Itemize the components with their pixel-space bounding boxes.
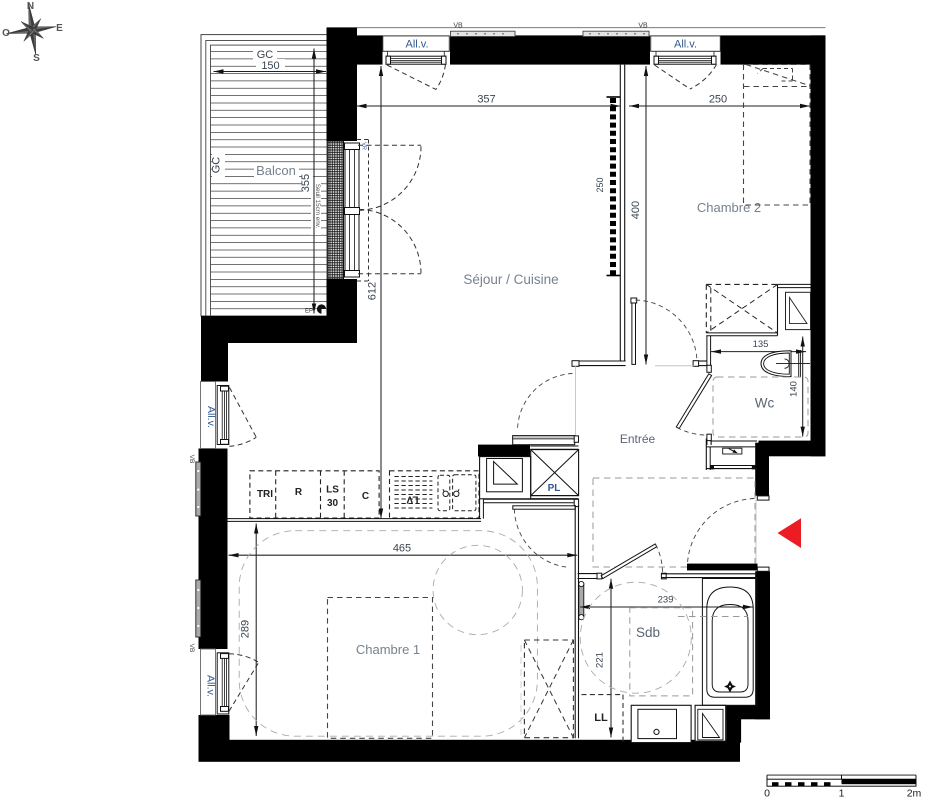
svg-text:150: 150 bbox=[261, 60, 279, 72]
svg-text:TRI: TRI bbox=[257, 489, 273, 500]
svg-text:135: 135 bbox=[753, 339, 769, 350]
svg-text:140: 140 bbox=[789, 381, 800, 397]
svg-text:VB: VB bbox=[188, 644, 195, 653]
svg-text:357: 357 bbox=[477, 94, 495, 106]
svg-text:Balcon: Balcon bbox=[256, 163, 296, 178]
svg-text:30: 30 bbox=[327, 498, 339, 509]
svg-text:VB: VB bbox=[453, 23, 463, 30]
svg-text:All.v.: All.v. bbox=[405, 39, 428, 51]
svg-text:250: 250 bbox=[709, 94, 727, 106]
svg-text:N: N bbox=[27, 1, 34, 12]
svg-text:Entrée: Entrée bbox=[620, 432, 656, 446]
svg-text:PL: PL bbox=[548, 483, 561, 494]
svg-text:465: 465 bbox=[393, 543, 411, 555]
svg-text:355: 355 bbox=[300, 174, 312, 192]
svg-text:LV: LV bbox=[406, 494, 418, 505]
svg-text:E: E bbox=[56, 23, 63, 34]
svg-text:LL: LL bbox=[594, 712, 608, 724]
svg-text:Sdb: Sdb bbox=[636, 625, 660, 640]
svg-text:Chambre 1: Chambre 1 bbox=[356, 642, 420, 657]
svg-text:LS: LS bbox=[326, 485, 339, 496]
svg-text:Séjour / Cuisine: Séjour / Cuisine bbox=[463, 272, 558, 287]
svg-text:612: 612 bbox=[367, 282, 379, 300]
svg-text:EP: EP bbox=[305, 309, 313, 315]
svg-text:S: S bbox=[33, 53, 40, 64]
svg-text:All.v.: All.v. bbox=[674, 39, 697, 51]
svg-text:250: 250 bbox=[595, 177, 605, 192]
svg-text:All.v.: All.v. bbox=[205, 406, 217, 428]
svg-text:289: 289 bbox=[240, 620, 252, 638]
svg-text:Wc: Wc bbox=[755, 396, 775, 411]
svg-text:VR: VR bbox=[361, 142, 367, 150]
svg-text:GC: GC bbox=[211, 157, 223, 174]
svg-text:C: C bbox=[362, 491, 369, 502]
svg-text:Seuil 15cm env.: Seuil 15cm env. bbox=[314, 184, 321, 229]
svg-text:VB: VB bbox=[188, 455, 195, 464]
svg-text:221: 221 bbox=[595, 652, 606, 668]
svg-text:Chambre 2: Chambre 2 bbox=[697, 200, 761, 215]
svg-text:All.v.: All.v. bbox=[205, 675, 217, 697]
svg-text:0: 0 bbox=[764, 788, 770, 800]
svg-text:2m: 2m bbox=[907, 788, 922, 800]
svg-text:R: R bbox=[295, 487, 303, 498]
svg-text:O: O bbox=[2, 28, 10, 39]
svg-text:400: 400 bbox=[630, 201, 642, 219]
svg-text:VB: VB bbox=[638, 23, 648, 30]
svg-text:1: 1 bbox=[839, 788, 845, 800]
svg-text:239: 239 bbox=[658, 595, 674, 606]
